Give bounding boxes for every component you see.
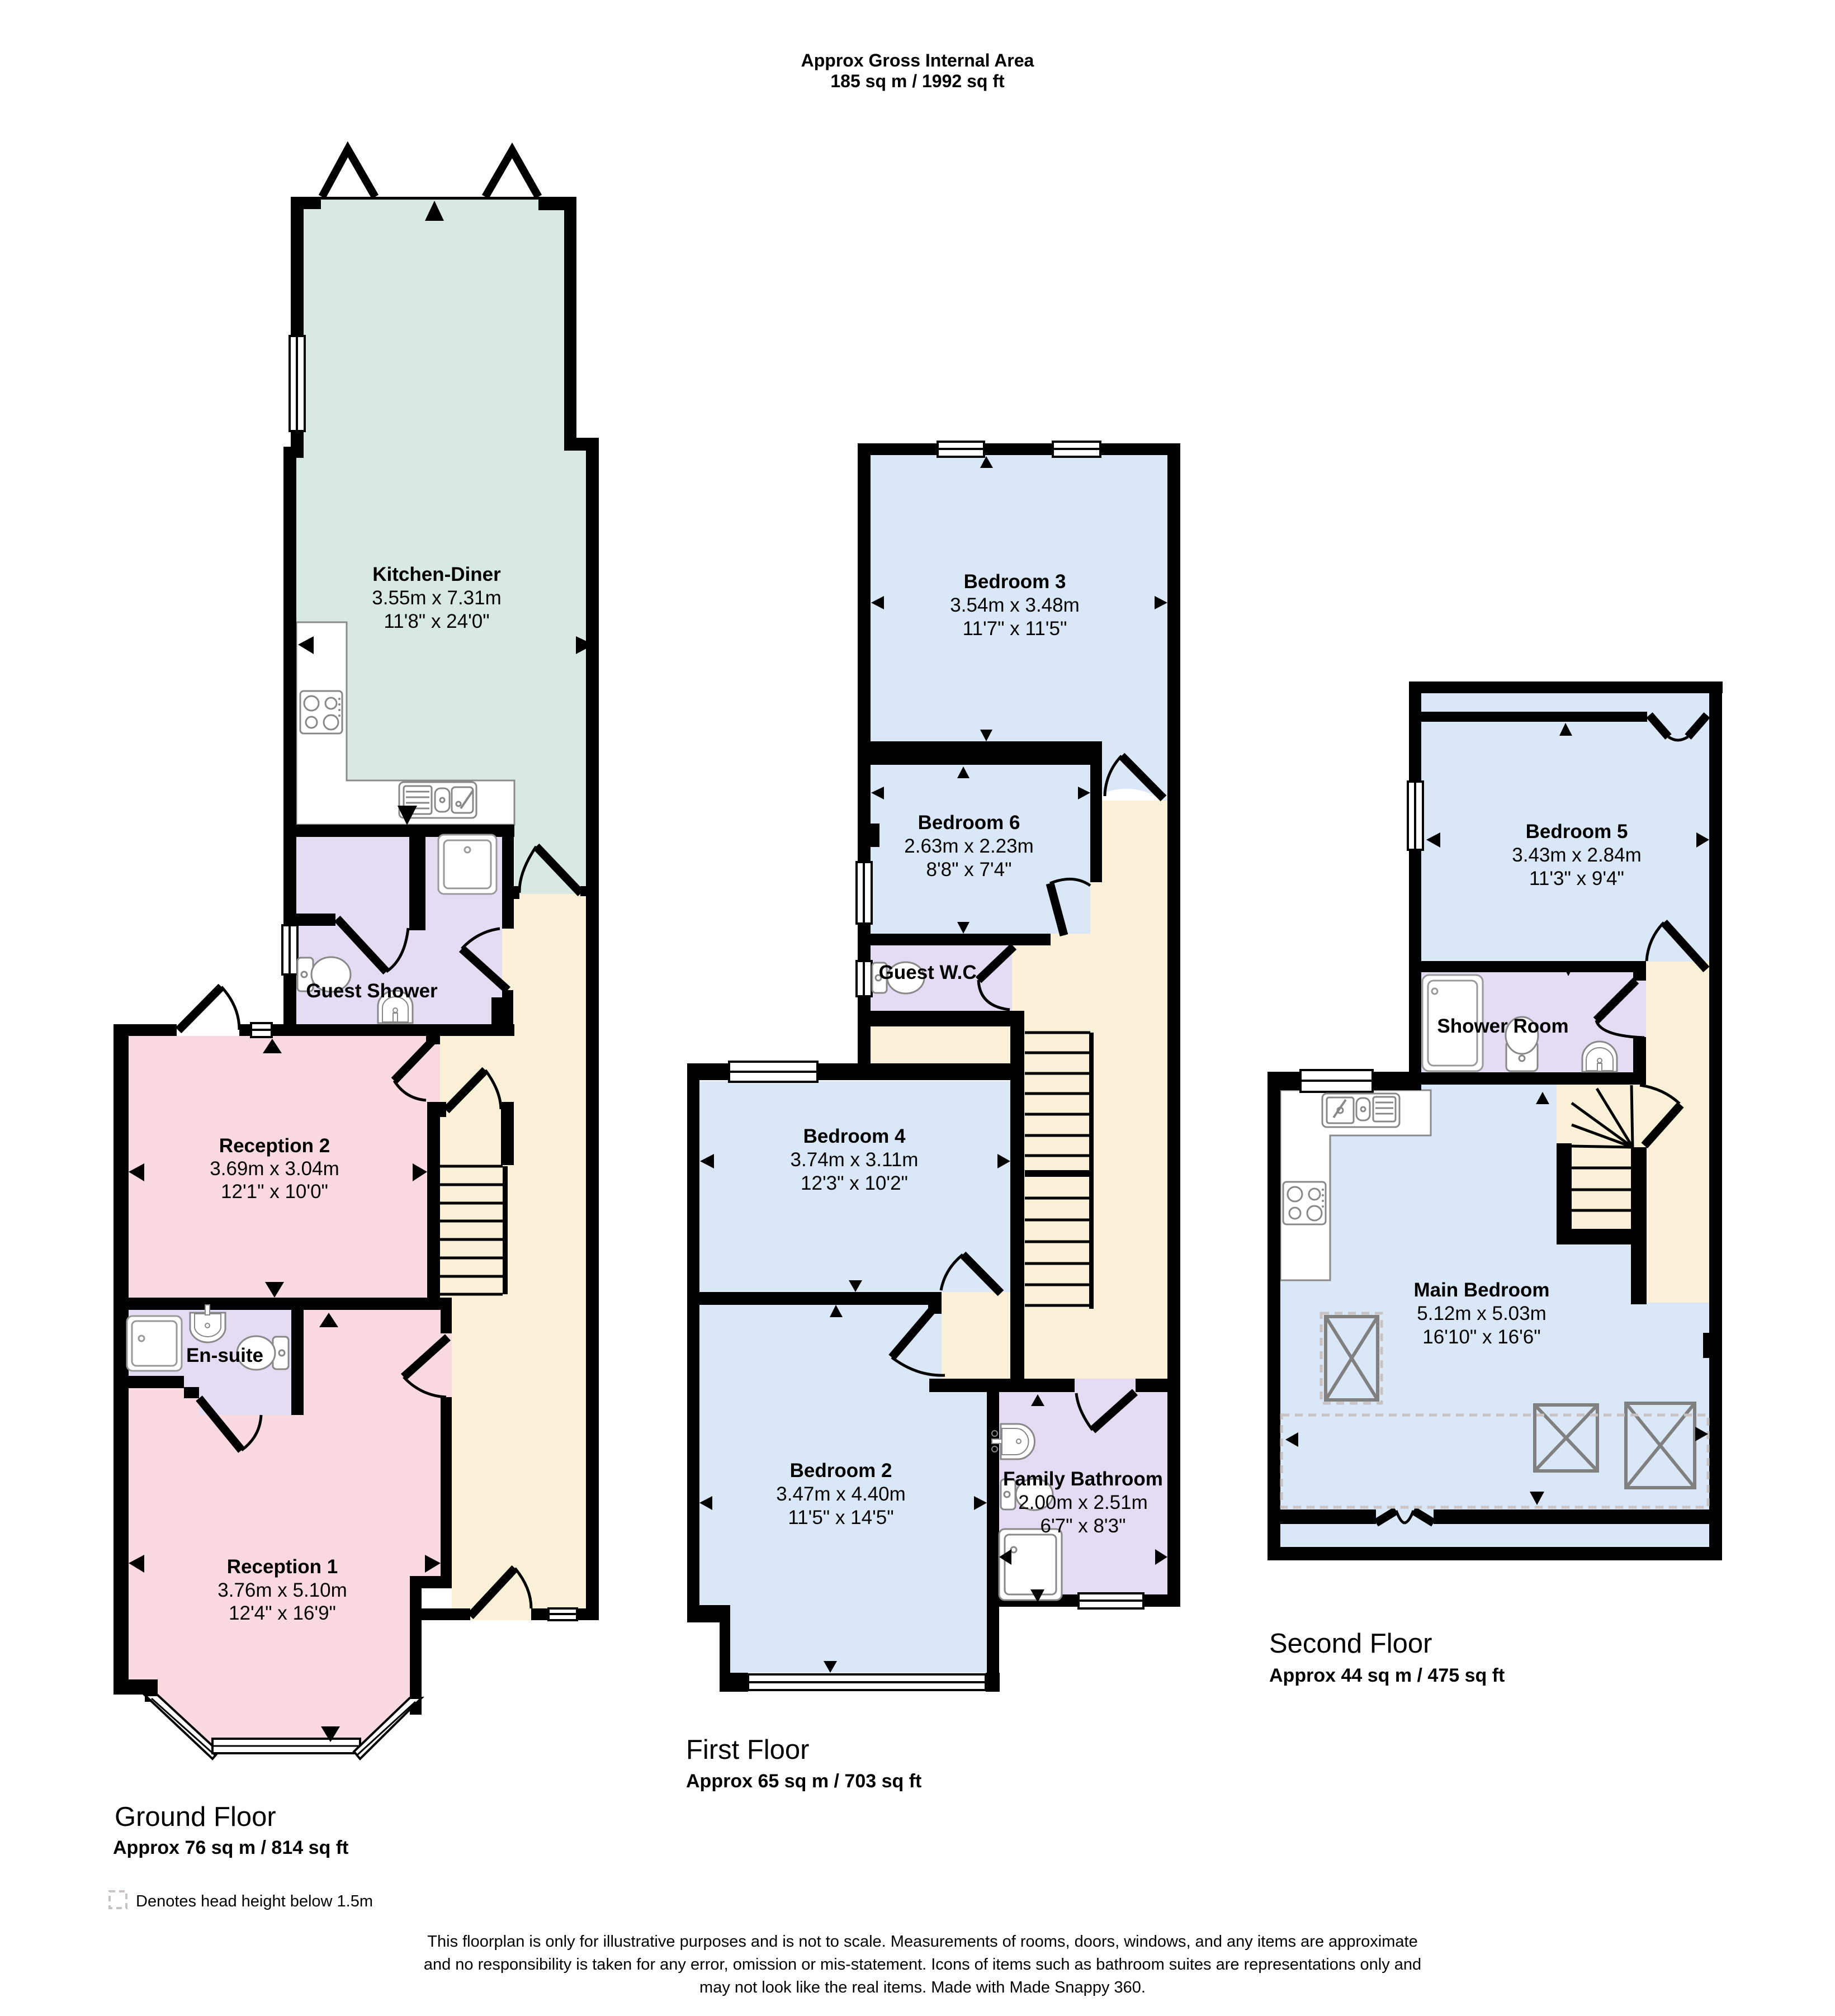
svg-text:may not look like the real ite: may not look like the real items. Made w… bbox=[699, 1979, 1146, 1996]
svg-text:3.47m x 4.40m: 3.47m x 4.40m bbox=[776, 1483, 906, 1505]
svg-text:11'3" x 9'4": 11'3" x 9'4" bbox=[1529, 868, 1624, 889]
svg-text:11'7" x 11'5": 11'7" x 11'5" bbox=[963, 618, 1067, 640]
svg-text:12'4" x 16'9": 12'4" x 16'9" bbox=[229, 1602, 336, 1624]
svg-text:Reception 1: Reception 1 bbox=[227, 1556, 338, 1578]
svg-text:11'8" x 24'0": 11'8" x 24'0" bbox=[384, 611, 489, 632]
svg-text:2.00m x 2.51m: 2.00m x 2.51m bbox=[1018, 1492, 1148, 1513]
svg-text:5.12m x 5.03m: 5.12m x 5.03m bbox=[1417, 1303, 1546, 1324]
svg-text:Second Floor: Second Floor bbox=[1269, 1629, 1432, 1659]
svg-text:11'5" x 14'5": 11'5" x 14'5" bbox=[788, 1507, 893, 1528]
svg-text:3.69m x 3.04m: 3.69m x 3.04m bbox=[210, 1158, 339, 1180]
svg-text:En-suite: En-suite bbox=[186, 1345, 263, 1366]
svg-text:Bedroom 3: Bedroom 3 bbox=[964, 571, 1066, 593]
svg-text:Guest Shower: Guest Shower bbox=[306, 980, 438, 1002]
svg-text:Guest W.C.: Guest W.C. bbox=[879, 962, 982, 983]
svg-text:8'8" x 7'4": 8'8" x 7'4" bbox=[926, 859, 1011, 881]
svg-text:and no responsibility is taken: and no responsibility is taken for any e… bbox=[424, 1956, 1421, 1974]
svg-text:6'7" x 8'3": 6'7" x 8'3" bbox=[1040, 1515, 1125, 1537]
svg-text:Bedroom 6: Bedroom 6 bbox=[918, 812, 1020, 834]
svg-text:This floorplan is only for ill: This floorplan is only for illustrative … bbox=[427, 1933, 1417, 1951]
svg-text:Bedroom 4: Bedroom 4 bbox=[803, 1125, 906, 1147]
svg-text:Reception 2: Reception 2 bbox=[219, 1135, 330, 1157]
svg-text:Bedroom 5: Bedroom 5 bbox=[1526, 821, 1628, 843]
svg-text:Approx 76 sq m / 814 sq ft: Approx 76 sq m / 814 sq ft bbox=[113, 1837, 348, 1858]
svg-text:Bedroom 2: Bedroom 2 bbox=[790, 1460, 892, 1482]
svg-text:3.74m x 3.11m: 3.74m x 3.11m bbox=[791, 1149, 919, 1171]
svg-text:2.63m x 2.23m: 2.63m x 2.23m bbox=[904, 835, 1034, 857]
svg-text:3.76m x 5.10m: 3.76m x 5.10m bbox=[217, 1579, 347, 1601]
svg-text:Shower Room: Shower Room bbox=[1437, 1015, 1568, 1037]
svg-text:Denotes head height below 1.5m: Denotes head height below 1.5m bbox=[136, 1892, 373, 1910]
svg-text:16'10" x 16'6": 16'10" x 16'6" bbox=[1422, 1326, 1540, 1348]
svg-text:Family Bathroom: Family Bathroom bbox=[1003, 1468, 1163, 1490]
svg-text:Kitchen-Diner: Kitchen-Diner bbox=[372, 564, 501, 585]
svg-text:3.54m x 3.48m: 3.54m x 3.48m bbox=[950, 594, 1080, 616]
svg-text:3.55m x 7.31m: 3.55m x 7.31m bbox=[372, 587, 502, 609]
svg-text:12'1" x 10'0": 12'1" x 10'0" bbox=[221, 1181, 328, 1203]
svg-text:Approx Gross Internal Area: Approx Gross Internal Area bbox=[801, 50, 1034, 70]
svg-text:3.43m x 2.84m: 3.43m x 2.84m bbox=[1512, 844, 1642, 866]
svg-text:First Floor: First Floor bbox=[686, 1735, 810, 1765]
svg-text:Main Bedroom: Main Bedroom bbox=[1413, 1279, 1549, 1301]
svg-text:185 sq m / 1992 sq ft: 185 sq m / 1992 sq ft bbox=[830, 71, 1005, 91]
svg-text:Approx 65 sq m / 703 sq ft: Approx 65 sq m / 703 sq ft bbox=[686, 1771, 921, 1792]
svg-text:Approx 44 sq m / 475 sq ft: Approx 44 sq m / 475 sq ft bbox=[1269, 1665, 1505, 1686]
svg-text:12'3" x 10'2": 12'3" x 10'2" bbox=[801, 1172, 908, 1194]
svg-text:Ground Floor: Ground Floor bbox=[115, 1802, 276, 1832]
